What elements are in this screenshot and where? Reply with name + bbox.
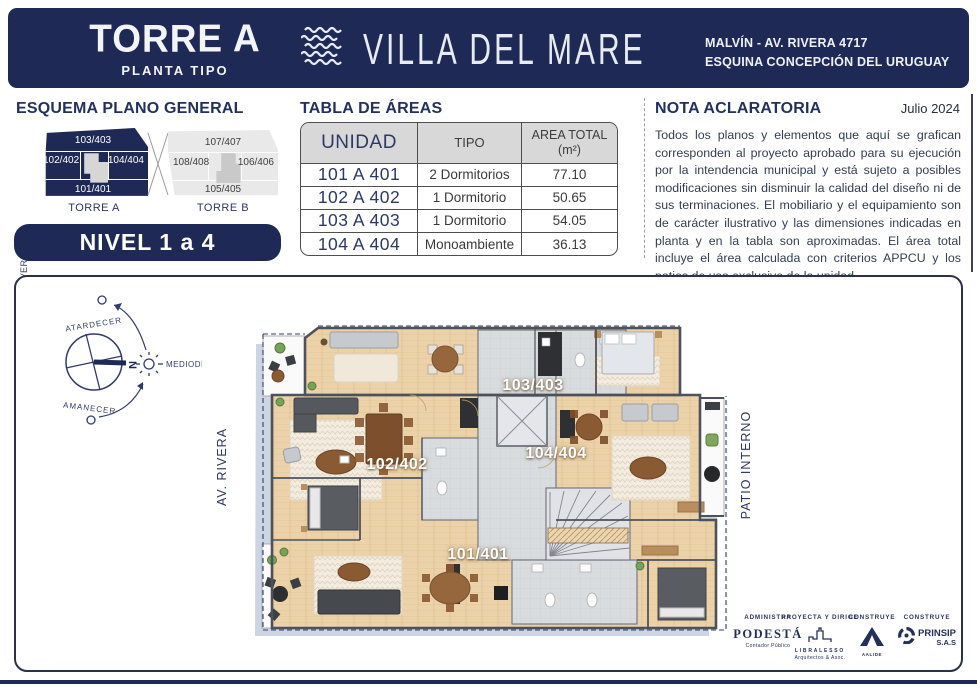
cell-area: 54.05 xyxy=(522,210,617,233)
col-tipo: TIPO xyxy=(418,123,522,164)
expansion-joint-x xyxy=(147,130,169,203)
nivel-badge: NIVEL 1 a 4 xyxy=(14,224,281,261)
unit-107: 107/407 xyxy=(205,137,241,148)
table-row: 102 A 402 1 Dormitorio 50.65 xyxy=(301,187,617,210)
plan-label-103: 103/403 xyxy=(488,377,578,395)
areas-table: UNIDAD TIPO AREA TOTAL (m²) 101 A 401 2 … xyxy=(300,122,618,256)
logo-construye-2: CONSTRUYE PRINSIP S.A.S xyxy=(898,614,956,661)
logo-role: CONSTRUYE xyxy=(849,614,896,621)
tower-title-block: TORRE A PLANTA TIPO xyxy=(60,18,290,78)
triangle-icon xyxy=(860,627,884,651)
logo-role: CONSTRUYE xyxy=(904,614,951,621)
torre-b-caption: TORRE B xyxy=(188,202,258,214)
address-line2: ESQUINA CONCEPCIÓN DEL URUGUAY xyxy=(705,53,949,72)
prinsip-wordmark: PRINSIP xyxy=(918,629,956,639)
compass-mediodia: MEDIODÍA xyxy=(166,360,202,369)
address-block: MALVÍN - AV. RIVERA 4717 ESQUINA CONCEPC… xyxy=(705,34,949,73)
cell-unidad: 103 A 403 xyxy=(301,210,418,233)
divider xyxy=(80,151,81,179)
nota-body: Todos los planos y elementos que aquí se… xyxy=(655,127,961,285)
wardrobe xyxy=(548,528,628,543)
cell-unidad: 102 A 402 xyxy=(301,187,418,210)
address-line1: MALVÍN - AV. RIVERA 4717 xyxy=(705,34,949,53)
street-label: AV. RIVERA xyxy=(215,417,229,517)
nota-title: NOTA ACLARATORIA xyxy=(655,100,821,118)
plan-label-104: 104/404 xyxy=(511,445,601,463)
tabla-title: TABLA DE ÁREAS xyxy=(300,100,442,118)
table-row: 104 A 404 Monoambiente 36.13 xyxy=(301,233,617,256)
prinsip-sas: S.A.S xyxy=(918,638,956,647)
unit-101: 101/401 xyxy=(75,184,111,195)
logo-construye-1: CONSTRUYE AALIDE xyxy=(846,614,898,661)
header-banner: TORRE A PLANTA TIPO VILLA DEL MARE MALVÍ… xyxy=(8,8,969,88)
cell-unidad: 104 A 404 xyxy=(301,233,418,256)
col-area-line2: (m²) xyxy=(558,143,581,157)
logo-proyecta: PROYECTA Y DIRIGE LIBRALESSO Arquitectos… xyxy=(794,614,846,661)
col-area-line1: AREA TOTAL xyxy=(532,128,608,142)
compass-north: N xyxy=(126,361,138,369)
brand-name: VILLA DEL MARE xyxy=(363,26,646,75)
logo-administra: ADMINISTRA PODESTÁ Contador Público xyxy=(742,614,794,661)
elevator xyxy=(497,396,547,446)
cell-tipo: 2 Dormitorios xyxy=(418,164,522,187)
table-row: 103 A 403 1 Dormitorio 54.05 xyxy=(301,210,617,233)
logo-sub: Contador Público xyxy=(746,643,791,649)
libralesso-wordmark: LIBRALESSO xyxy=(795,648,845,654)
aalide-wordmark: AALIDE xyxy=(862,652,882,657)
cell-tipo: 1 Dormitorio xyxy=(418,210,522,233)
cell-area: 50.65 xyxy=(522,187,617,210)
unit-105: 105/405 xyxy=(205,184,241,195)
cell-tipo: 1 Dormitorio xyxy=(418,187,522,210)
table-row: 101 A 401 2 Dormitorios 77.10 xyxy=(301,164,617,187)
divider xyxy=(38,151,148,152)
compass-atardecer: ATARDECER xyxy=(65,316,123,334)
col-unidad: UNIDAD xyxy=(301,123,418,164)
unit-103: 103/403 xyxy=(75,135,111,146)
logo-sub: Arquitectos & Asoc. xyxy=(795,655,846,661)
cell-area: 77.10 xyxy=(522,164,617,187)
torre-a-caption: TORRE A xyxy=(59,202,129,214)
waves-icon xyxy=(301,25,349,76)
date-label: Julio 2024 xyxy=(850,101,960,116)
plan-label-101: 101/401 xyxy=(433,546,523,564)
cell-area: 36.13 xyxy=(522,233,617,256)
pinwheel-icon xyxy=(898,627,915,649)
col-area: AREA TOTAL (m²) xyxy=(522,123,617,164)
cell-tipo: Monoambiente xyxy=(418,233,522,256)
tower-subtitle: PLANTA TIPO xyxy=(60,63,290,78)
compass-amanecer: AMANECER xyxy=(63,400,117,415)
unit-104: 104/404 xyxy=(108,155,144,166)
torre-b-shape: 107/407 108/408 106/406 105/405 xyxy=(168,130,278,198)
unit-108: 108/408 xyxy=(173,157,209,168)
tower-title: TORRE A xyxy=(60,17,290,61)
bottom-rule xyxy=(0,680,977,684)
nota-separator xyxy=(644,98,645,258)
brand-block: VILLA DEL MARE xyxy=(301,25,646,76)
esquema-title: ESQUEMA PLANO GENERAL xyxy=(16,100,244,118)
plan-label-102: 102/402 xyxy=(352,456,442,474)
floorplan-drawing xyxy=(250,298,750,638)
torre-a-shape: 103/403 102/402 104/404 101/401 xyxy=(38,128,148,198)
libralesso-building-icon xyxy=(807,627,833,647)
footer-logos: ADMINISTRA PODESTÁ Contador Público PROY… xyxy=(742,614,956,661)
right-edge-line xyxy=(971,94,973,272)
unit-102: 102/402 xyxy=(43,155,79,166)
esquema-diagram: AV. RIVERA 103/403 102/402 104/404 101/4… xyxy=(14,120,286,220)
table-header-row: UNIDAD TIPO AREA TOTAL (m²) xyxy=(301,123,617,164)
sun-compass: N ATARDECER MEDIODÍA AMANECER xyxy=(32,286,202,428)
cell-unidad: 101 A 401 xyxy=(301,164,418,187)
podesta-wordmark: PODESTÁ xyxy=(733,627,803,642)
plan-sheet: TORRE A PLANTA TIPO VILLA DEL MARE MALVÍ… xyxy=(0,0,977,687)
arrow-head xyxy=(114,303,122,311)
unit-106: 106/406 xyxy=(238,157,274,168)
